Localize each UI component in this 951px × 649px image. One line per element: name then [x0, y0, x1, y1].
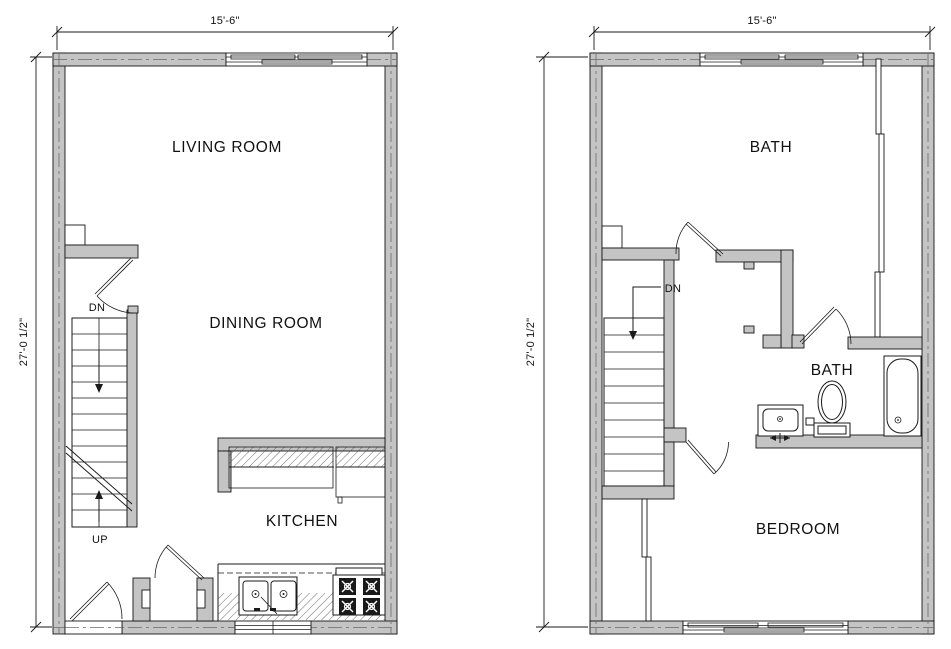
bath-large-label: BATH	[750, 139, 793, 156]
stair-up-arrow	[95, 490, 103, 522]
first-floor-interior-walls	[65, 225, 385, 621]
kitchen-counter-upper	[229, 447, 385, 503]
bath-large-door	[676, 222, 723, 256]
living-room-window	[226, 53, 367, 66]
stove	[333, 568, 385, 615]
bedroom-door	[686, 440, 729, 474]
bath-small-door	[800, 307, 851, 344]
bath-small-label: BATH	[811, 362, 854, 379]
first-floor-plan: 15'-6" 27'-0 1/2"	[18, 15, 398, 634]
entry-door	[65, 582, 122, 634]
second-floor-plan: 15'-6" 27'-0 1/2"	[525, 15, 935, 634]
bath-large-window	[700, 53, 863, 66]
stair-up-label: UP	[92, 534, 108, 546]
first-floor-width-dimension: 15'-6"	[210, 15, 239, 27]
dining-room-label: DINING ROOM	[209, 315, 322, 332]
floor-plan-page: 15'-6" 27'-0 1/2"	[0, 0, 951, 649]
stair-down-label: DN	[665, 283, 682, 295]
bedroom-label: BEDROOM	[756, 521, 840, 538]
second-floor-dimensions: 15'-6" 27'-0 1/2"	[525, 15, 935, 632]
stair-down-arrow	[95, 350, 103, 393]
kitchen-window	[235, 621, 311, 634]
first-floor-height-dimension: 27'-0 1/2"	[18, 318, 30, 366]
bathtub	[884, 356, 921, 436]
stair-down-label: DN	[89, 302, 106, 314]
toilet	[806, 381, 850, 437]
floor-plan-drawing: 15'-6" 27'-0 1/2"	[0, 0, 951, 649]
kitchen-sink	[239, 577, 297, 615]
first-floor-stairs: DN UP	[66, 302, 132, 546]
closet-door	[155, 545, 204, 580]
stair-down-arrow	[629, 287, 661, 340]
living-room-label: LIVING ROOM	[172, 139, 282, 156]
first-floor-dimensions: 15'-6" 27'-0 1/2"	[18, 15, 398, 632]
bedroom-window	[683, 621, 848, 634]
kitchen-label: KITCHEN	[266, 513, 338, 530]
second-floor-height-dimension: 27'-0 1/2"	[525, 318, 537, 366]
second-floor-width-dimension: 15'-6"	[747, 15, 776, 27]
